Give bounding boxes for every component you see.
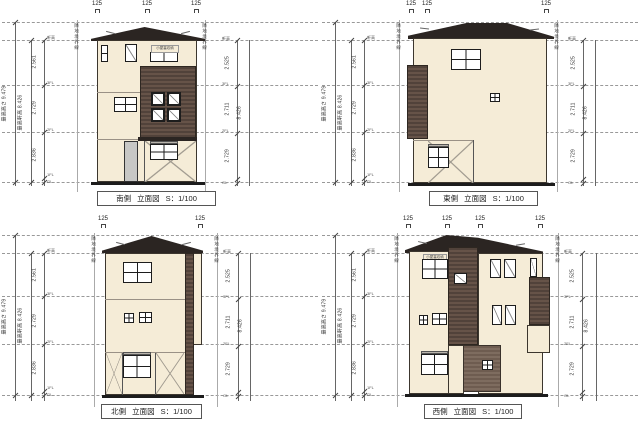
marker-125: 125 [532, 216, 548, 222]
datum-line-max-height [322, 235, 638, 236]
dim-label-max-height: 最高高さ 9.479 [323, 86, 329, 122]
wall-joint [155, 353, 156, 395]
marker-glyph [409, 9, 414, 13]
caption-type: 立面図 [132, 406, 155, 417]
ground-line [91, 182, 205, 185]
window [454, 273, 467, 284]
window [167, 108, 181, 122]
boundary-label: 隣地境界線 [394, 236, 399, 264]
dim-label-eave-height: 最高軒高 8.426 [339, 95, 345, 131]
marker-125: 125 [188, 1, 204, 7]
marker-125: 125 [400, 216, 416, 222]
dim-label-eave-height: 最高軒高 8.426 [19, 95, 25, 131]
caption-name: 北側 [111, 406, 126, 417]
setback-wall [193, 253, 202, 345]
caption: 南側 立面図 S：1/100 [97, 191, 216, 206]
dim-label: 2.525 [227, 269, 233, 283]
dimension-line [364, 40, 365, 186]
slope-mark [181, 31, 190, 34]
dim-label: 2.729 [33, 101, 39, 115]
window [432, 313, 447, 325]
window [490, 259, 501, 278]
datum-line-max-height [322, 22, 638, 23]
ground-line [408, 183, 555, 186]
wall-patch [448, 345, 464, 394]
marker-125: 125 [95, 216, 111, 222]
datum-line-max-height [2, 235, 318, 236]
marker-glyph [538, 224, 543, 228]
marker-glyph [101, 224, 106, 228]
level-label: 3FL [367, 292, 374, 296]
level-label: 3FL [47, 81, 54, 85]
dim-label: 2.525 [572, 56, 578, 70]
dim-label: 2.561 [353, 55, 359, 69]
level-label: GL [568, 181, 573, 185]
datum-line-max-height [2, 22, 318, 23]
window [504, 259, 516, 278]
roof [408, 23, 554, 39]
slope-mark [418, 241, 427, 244]
level-label: 3FL [564, 295, 571, 299]
window [422, 259, 448, 279]
dim-label: 2.561 [33, 268, 39, 282]
window [123, 355, 151, 378]
dim-label: 2.729 [227, 362, 233, 376]
caption-scale: S：1/100 [166, 193, 197, 204]
caption-type: 立面図 [137, 193, 160, 204]
caption: 西側 立面図 S：1/100 [424, 404, 522, 419]
window [150, 144, 178, 160]
entry-door [124, 141, 138, 182]
dimension-line [335, 22, 336, 186]
caption-scale: S：1/100 [161, 406, 192, 417]
dim-label: 2.729 [353, 314, 359, 328]
marker-glyph [544, 9, 549, 13]
boundary-label: 隣地境界線 [202, 23, 207, 51]
caption: 北側 立面図 S：1/100 [101, 404, 202, 419]
ground-line [405, 394, 548, 397]
roof [91, 27, 205, 41]
window [125, 44, 137, 62]
boundary-label: 隣地境界線 [555, 236, 560, 264]
marker-125: 125 [89, 1, 105, 7]
marker-125: 125 [403, 1, 419, 7]
marker-glyph [425, 9, 430, 13]
elevation-drawing-sheet: 最高高さ 9.479 最高軒高 8.426 2.561 2.729 2.836 … [0, 0, 640, 431]
dimension-line [335, 235, 336, 401]
boundary-label: 隣地境界線 [396, 23, 401, 51]
dim-label: 2.711 [226, 102, 232, 115]
window [123, 262, 152, 283]
dim-label: 8.426 [239, 319, 245, 333]
window [492, 305, 502, 325]
window [114, 97, 137, 112]
marker-glyph [198, 224, 203, 228]
level-label: GL [222, 181, 227, 185]
slope-mark [420, 27, 429, 29]
dimension-line [596, 253, 597, 401]
roof [102, 236, 203, 253]
dimension-line [15, 235, 16, 401]
level-label: 1FL [367, 173, 374, 177]
slope-mark [116, 242, 125, 245]
slope-mark [516, 243, 525, 245]
boundary-label: 隣地境界線 [214, 236, 219, 264]
level-label: 3FL [367, 81, 374, 85]
caption-name: 西側 [433, 406, 448, 417]
level-label: 3FL [223, 295, 230, 299]
level-label: 2FL [568, 129, 575, 133]
marker-125: 125 [472, 216, 488, 222]
dimension-line [15, 22, 16, 186]
marker-glyph [145, 9, 150, 13]
level-label: 3FL [568, 82, 575, 86]
level-label: GL [367, 180, 372, 184]
boundary-label: 隣地境界線 [554, 23, 559, 51]
marker-glyph [95, 9, 100, 13]
dim-label: 2.729 [353, 101, 359, 115]
x-brace-panel [156, 353, 184, 394]
caption-name: 南側 [116, 193, 131, 204]
dimension-line [44, 253, 45, 401]
level-label: 2FL [47, 340, 54, 344]
dimension-line [250, 253, 251, 401]
dim-label-max-height: 最高高さ 9.479 [323, 299, 329, 335]
caption: 東側 立面図 S：1/100 [429, 191, 538, 206]
dim-label: 2.729 [572, 149, 578, 163]
window [530, 258, 537, 277]
x-brace-panel [106, 353, 122, 394]
elevation-east: 最高高さ 9.479 最高軒高 8.426 2.561 2.729 2.836 … [320, 0, 640, 215]
window [151, 108, 165, 122]
level-label: 軒高 [222, 37, 230, 41]
level-label: 軒高 [47, 36, 55, 40]
dim-label-eave-height: 最高軒高 8.426 [339, 308, 345, 344]
level-label: GL [47, 180, 52, 184]
window [490, 93, 500, 102]
ground-line [102, 395, 204, 398]
dim-label: 2.711 [572, 102, 578, 115]
marker-glyph [406, 224, 411, 228]
level-label: 軒高 [47, 249, 55, 253]
marker-125: 125 [419, 1, 435, 7]
floor-band [105, 299, 185, 300]
boundary-label: 隣地境界線 [91, 236, 96, 264]
level-label: 2FL [367, 340, 374, 344]
dim-label-eave-height: 最高軒高 8.426 [19, 308, 25, 344]
marker-glyph [478, 224, 483, 228]
caption-type: 立面図 [464, 193, 487, 204]
floor-band [97, 92, 140, 93]
level-label: GL [223, 394, 228, 398]
dim-label: 2.836 [33, 361, 39, 375]
window [124, 313, 134, 323]
dimension-line [364, 253, 365, 401]
dim-label: 2.729 [33, 314, 39, 328]
window [139, 312, 152, 323]
level-label: 軒高 [367, 249, 375, 253]
marker-125: 125 [192, 216, 208, 222]
siding-panel [185, 253, 194, 395]
siding-panel [529, 277, 550, 325]
dim-label: 8.426 [238, 106, 244, 120]
dimension-line [249, 40, 250, 186]
level-label: 3FL [47, 292, 54, 296]
dim-label: 8.426 [584, 106, 590, 120]
window [167, 92, 181, 106]
wall-joint [144, 141, 145, 182]
dim-label: 2.836 [353, 361, 359, 375]
siding-panel [407, 65, 428, 139]
dim-label: 2.836 [353, 148, 359, 162]
level-label: GL [564, 394, 569, 398]
window [419, 315, 428, 325]
caption-scale: S：1/100 [493, 193, 524, 204]
level-label: 2FL [47, 128, 54, 132]
dim-label: 2.836 [33, 148, 39, 162]
window [421, 354, 448, 375]
dimension-line [44, 40, 45, 186]
marker-125: 125 [139, 1, 155, 7]
window [150, 52, 178, 62]
window [505, 305, 516, 325]
window [428, 147, 449, 168]
elevation-west: 最高高さ 9.479 最高軒高 8.426 2.561 2.729 2.836 … [320, 215, 640, 431]
window [451, 49, 481, 70]
level-label: 軒高 [568, 37, 576, 41]
dim-label: 2.711 [571, 315, 577, 328]
elevation-north: 最高高さ 9.479 最高軒高 8.426 2.561 2.729 2.836 … [0, 215, 320, 431]
slope-mark [530, 28, 539, 30]
attic-note: 小屋裏収納 [151, 45, 179, 53]
dim-label: 2.525 [226, 56, 232, 70]
level-label: 軒高 [564, 250, 572, 254]
bay-volume [527, 325, 550, 353]
window [101, 45, 108, 62]
level-label: 1FL [47, 173, 54, 177]
window [151, 92, 165, 106]
marker-125: 125 [439, 216, 455, 222]
level-label: 軒高 [223, 250, 231, 254]
elevation-south: 最高高さ 9.479 最高軒高 8.426 2.561 2.729 2.836 … [0, 0, 320, 215]
siding-panel [448, 247, 478, 345]
level-label: 軒高 [367, 36, 375, 40]
dim-label-max-height: 最高高さ 9.479 [3, 299, 9, 335]
dimension-line [595, 40, 596, 186]
level-label: 2FL [222, 129, 229, 133]
level-label: GL [47, 393, 52, 397]
slope-mark [182, 242, 191, 245]
marker-glyph [194, 9, 199, 13]
dim-label: 2.561 [33, 55, 39, 69]
marker-125: 125 [538, 1, 554, 7]
dim-label: 2.729 [226, 149, 232, 163]
boundary-label: 隣地境界線 [74, 23, 79, 51]
dim-label: 2.525 [571, 269, 577, 283]
wall-joint [473, 140, 474, 183]
caption-type: 立面図 [454, 406, 477, 417]
marker-glyph [445, 224, 450, 228]
dim-label-max-height: 最高高さ 9.479 [3, 86, 9, 122]
caption-name: 東側 [443, 193, 458, 204]
caption-scale: S：1/100 [482, 406, 513, 417]
level-label: 2FL [223, 342, 230, 346]
slope-mark [106, 31, 115, 34]
dim-label: 2.711 [227, 315, 233, 328]
level-label: 3FL [222, 82, 229, 86]
level-label: 2FL [367, 128, 374, 132]
dim-label: 8.426 [585, 319, 591, 333]
dim-label: 2.561 [353, 268, 359, 282]
level-label: 1FL [367, 386, 374, 390]
level-label: GL [367, 393, 372, 397]
level-label: 2FL [564, 342, 571, 346]
dim-label: 2.729 [571, 362, 577, 376]
window [482, 360, 493, 370]
level-label: 1FL [47, 386, 54, 390]
